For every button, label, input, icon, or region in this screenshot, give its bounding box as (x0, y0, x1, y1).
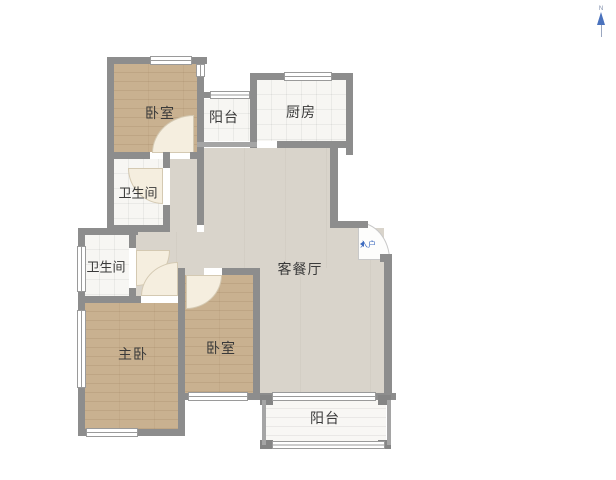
balcony-top-window (210, 91, 250, 99)
balcony-top-rail (197, 142, 257, 147)
floor-plan: 卧室 阳台 厨房 卫生间 卫生间 客餐厅 主卧 卧室 阳台 入户 N (0, 0, 616, 480)
room-label-kitchen: 厨房 (286, 102, 316, 122)
wall-segment (384, 256, 392, 396)
kitchen-window (284, 72, 332, 81)
wall-segment (190, 152, 204, 159)
living-dining-floor (204, 148, 330, 268)
bedroom-bottom-window (188, 392, 248, 401)
wall-segment (250, 73, 257, 148)
bedroom-top-side-window (196, 64, 205, 77)
wall-segment (277, 141, 353, 148)
wall-segment (78, 296, 141, 303)
north-label: N (592, 6, 610, 12)
balcony-side-rail (387, 400, 391, 445)
room-label-balcony-top: 阳台 (209, 107, 239, 127)
master-bedroom-window (86, 428, 138, 437)
corridor-floor (170, 159, 197, 232)
room-label-bathroom-upper: 卫生间 (118, 183, 157, 202)
balcony-side-rail (262, 400, 266, 445)
north-arrow-head (597, 12, 605, 25)
wall-segment (163, 152, 170, 168)
wall-segment (107, 152, 150, 159)
wall-segment (107, 57, 114, 232)
balcony-sliding-door (272, 392, 376, 401)
wall-segment (330, 221, 368, 228)
entrance-label: 入户 (360, 239, 376, 250)
bedroom-top-window (150, 56, 192, 65)
room-label-bedroom-bottom: 卧室 (206, 338, 236, 358)
room-label-bathroom-lower: 卫生间 (86, 257, 125, 276)
wall-segment (178, 268, 185, 436)
wall-segment (178, 268, 185, 275)
wall-segment (197, 57, 204, 225)
wall-segment (129, 228, 136, 248)
entrance-marker: 入户 (360, 241, 364, 247)
room-label-master-bedroom: 主卧 (118, 344, 148, 364)
north-arrow-stem (601, 25, 602, 37)
room-label-bedroom-top: 卧室 (145, 103, 175, 123)
room-label-living-dining: 客餐厅 (278, 259, 323, 279)
master-bedroom-floor (85, 303, 178, 429)
master-bedroom-side-window (77, 310, 86, 388)
bathroom-lower-window (77, 246, 86, 292)
balcony-bottom-railing (272, 441, 385, 449)
living-dining-floor (260, 268, 330, 393)
wall-segment (253, 268, 260, 400)
wall-segment (330, 148, 338, 228)
north-arrow-icon: N (592, 6, 610, 37)
room-label-balcony-bottom: 阳台 (310, 408, 340, 428)
